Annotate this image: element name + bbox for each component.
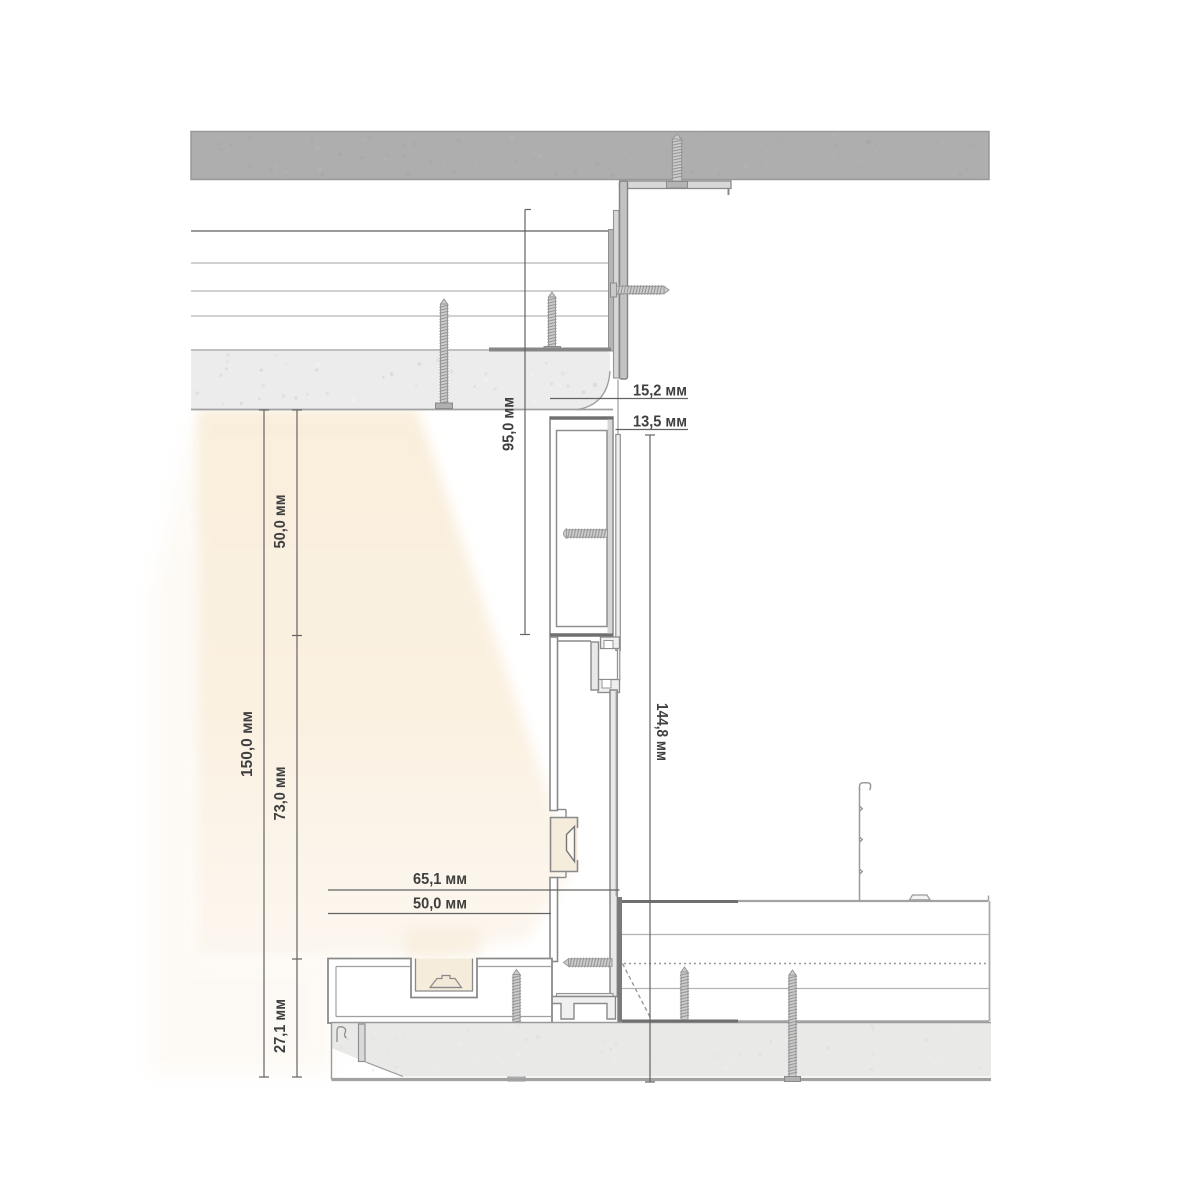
svg-text:95,0 мм: 95,0 мм bbox=[501, 397, 518, 451]
svg-text:65,1 мм: 65,1 мм bbox=[413, 871, 467, 888]
svg-text:13,5 мм: 13,5 мм bbox=[633, 414, 687, 431]
svg-text:50,0 мм: 50,0 мм bbox=[272, 495, 289, 549]
svg-text:15,2 мм: 15,2 мм bbox=[633, 383, 687, 400]
svg-text:144,8 мм: 144,8 мм bbox=[653, 703, 670, 761]
svg-text:73,0 мм: 73,0 мм bbox=[272, 767, 289, 821]
svg-text:150,0 мм: 150,0 мм bbox=[239, 711, 256, 777]
svg-text:27,1 мм: 27,1 мм bbox=[272, 999, 289, 1053]
svg-text:50,0 мм: 50,0 мм bbox=[413, 896, 467, 913]
